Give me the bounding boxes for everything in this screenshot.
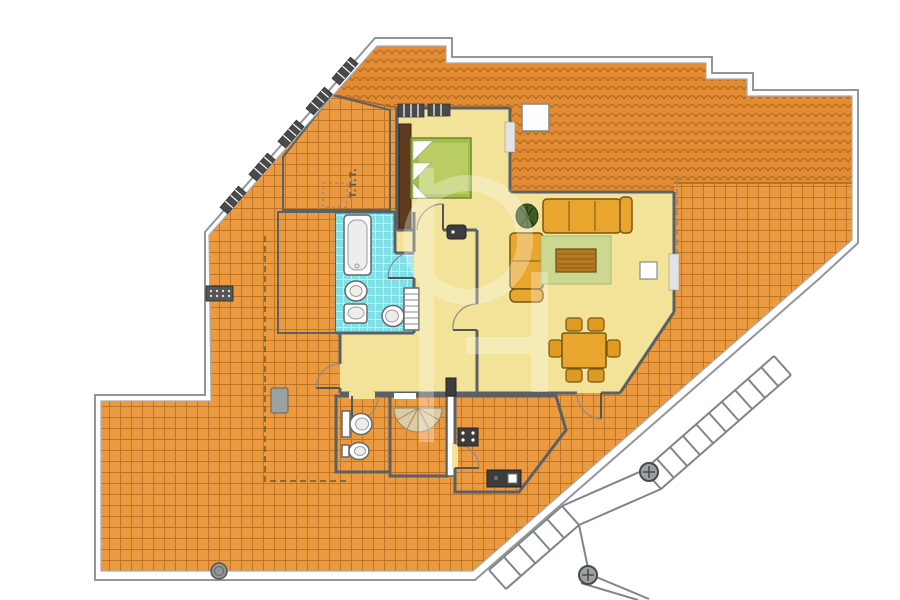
bathtub <box>344 215 371 275</box>
wc-bidet <box>342 443 369 460</box>
wc-toilet <box>342 411 372 437</box>
side-table <box>640 262 657 279</box>
bidet <box>345 281 367 301</box>
washbasin <box>344 304 367 323</box>
attic-room-label: T.T.T. <box>349 167 359 198</box>
stove <box>458 428 478 446</box>
vent-grille <box>206 286 233 301</box>
wall-unit <box>447 225 466 239</box>
kitchen-counter <box>487 470 521 487</box>
floor-plan-canvas: T.T.T. <box>0 0 900 600</box>
drain <box>211 563 227 579</box>
bedroom-window <box>398 104 450 117</box>
planter <box>271 388 288 413</box>
floor-plan-page: T.T.T. <box>0 0 900 600</box>
bedroom-terrace-threshold <box>505 122 515 152</box>
chimney <box>522 104 549 131</box>
living-terrace-threshold <box>669 254 679 290</box>
radiator <box>404 288 419 330</box>
shaft-unit <box>446 378 456 396</box>
svg-text:T.T.T.: T.T.T. <box>349 167 359 198</box>
coffee-table <box>556 249 596 272</box>
